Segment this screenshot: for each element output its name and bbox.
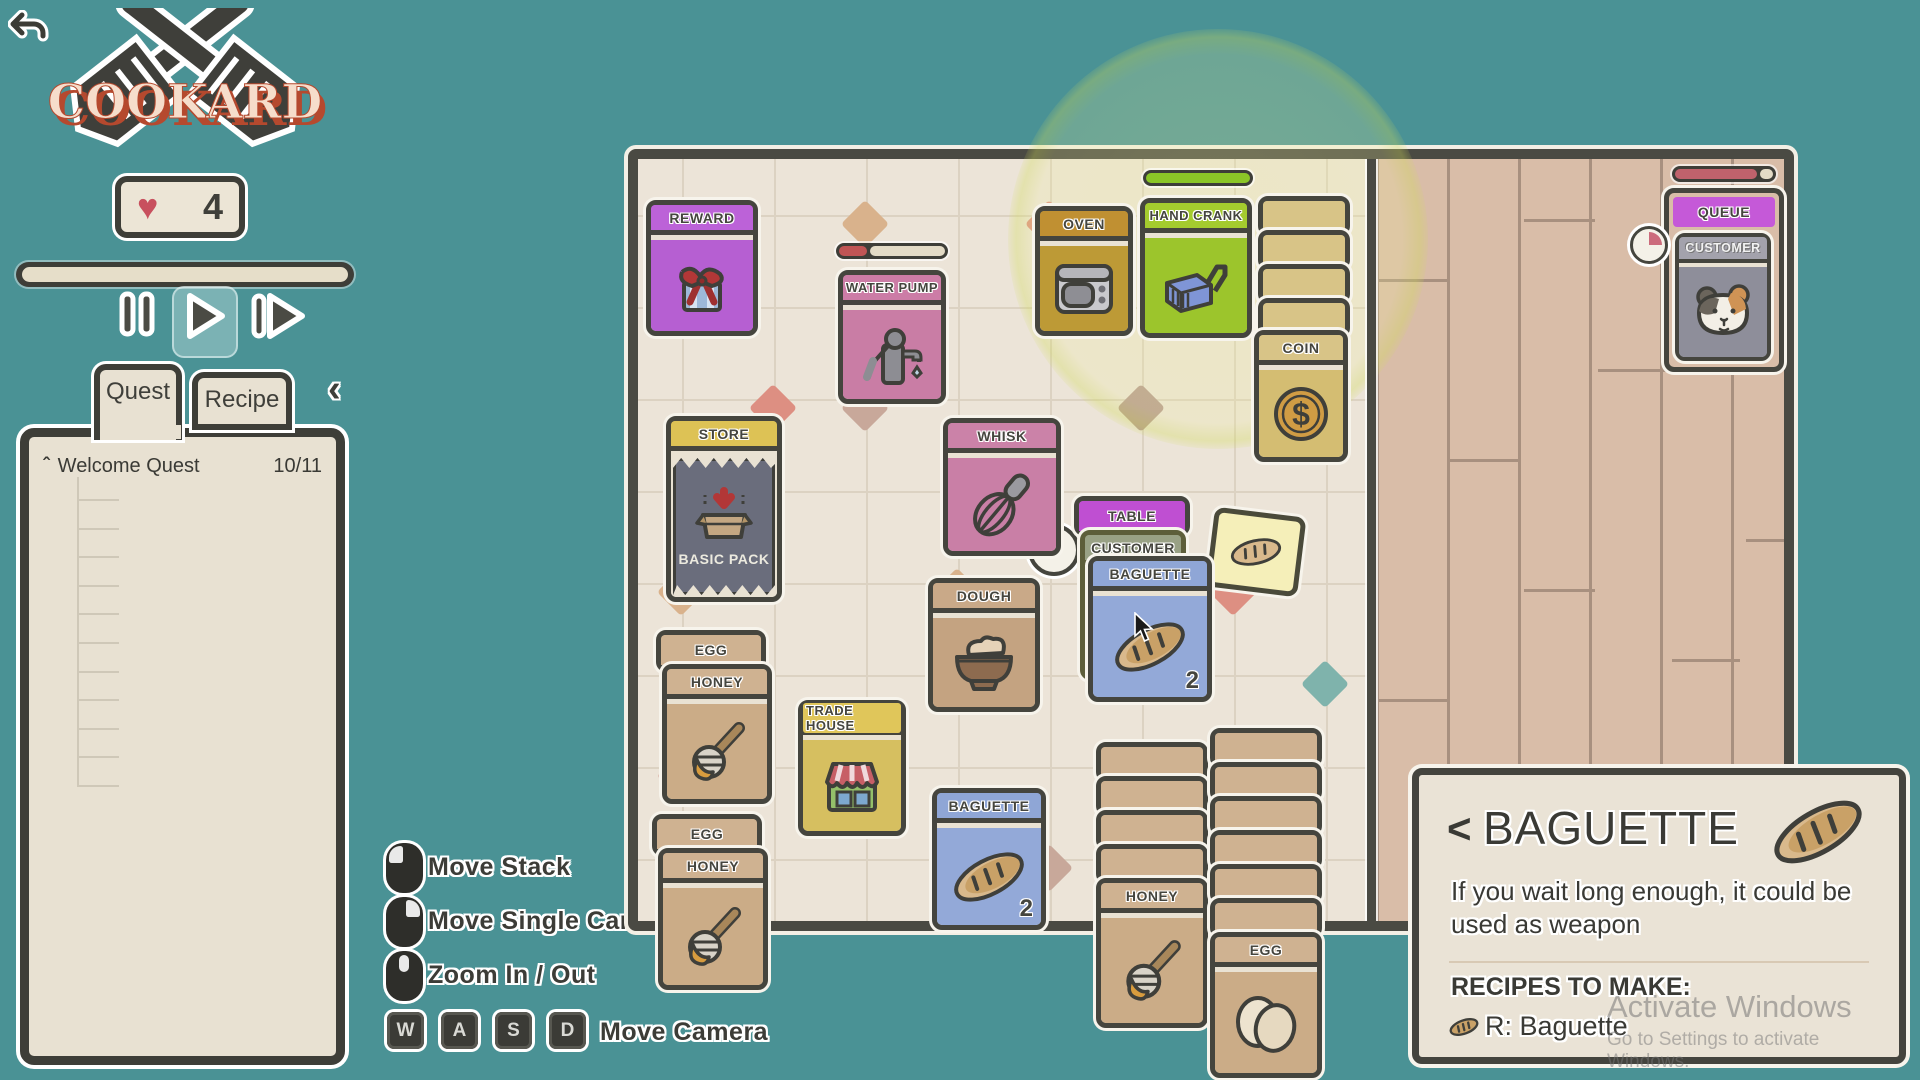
wood-seam [1376,279,1447,282]
baguette-table-count: 2 [1186,667,1199,695]
game-stage: COOKARD COOKARD ♥ 4 Quest Recipe ‹ [0,0,1920,1080]
tile-diamond [1301,660,1349,708]
tile-diamond [1117,384,1165,432]
card-honey-lower[interactable]: HONEY [658,848,768,990]
microwave-icon [1053,260,1115,318]
quest-tree-stub [77,528,119,530]
info-description: If you wait long enough, it could be use… [1451,875,1871,940]
card-trade-house[interactable]: TRADE HOUSE [798,700,906,836]
tab-quest-label: Quest [106,378,170,406]
quest-tree-stub [77,671,119,673]
quest-tree-stub [77,728,119,730]
eggs-icon [1228,990,1304,1056]
honey-dipper-icon [681,716,753,788]
card-table-label: TABLE [1108,508,1156,524]
baguette-bottom-count: 2 [1020,895,1033,923]
quest-group-title: Welcome Quest [58,455,200,478]
card-honey-upper[interactable]: HONEY [662,664,772,804]
card-honey-stack-label: HONEY [1126,888,1178,904]
wood-seam [1450,459,1521,462]
watermark-line2: Go to Settings to activate Windows. [1607,1029,1899,1073]
quest-tree-stub [77,556,119,558]
move-stack-label: Move Stack [428,853,571,882]
card-customer-queued-label: CUSTOMER [1685,241,1760,255]
card-trade-house-label: TRADE HOUSE [803,703,901,733]
key-w: W [387,1012,424,1049]
info-title: BAGUETTE [1483,801,1739,855]
card-baguette-preview [1205,507,1306,598]
quest-tree-stub [77,756,119,758]
card-queue-label: QUEUE [1698,204,1750,220]
pause-button[interactable] [116,288,158,340]
timer-icon [1630,226,1668,264]
card-reward[interactable]: REWARD [646,200,758,336]
card-baguette-table-label: BAGUETTE [1110,566,1191,582]
quest-tree-stub [77,499,119,501]
dough-bowl-icon [949,631,1019,695]
card-honey-upper-label: HONEY [691,674,743,690]
quest-tree-stub [77,585,119,587]
card-baguette-bottom[interactable]: BAGUETTE 2 [932,788,1046,930]
shop-icon [819,756,885,816]
card-hand-crank[interactable]: HAND CRANK [1140,198,1252,338]
move-single-card-label: Move Single Card [428,907,646,936]
hearts-counter: ♥ 4 [115,176,245,238]
cookard-logo: COOKARD COOKARD [30,8,340,168]
card-coin[interactable]: COIN $ [1254,330,1348,462]
card-water-pump[interactable]: WATER PUMP [838,270,946,404]
wood-seam [1746,539,1784,542]
coin-icon: $ [1271,384,1331,444]
baguette-icon [947,846,1031,908]
card-store-label: STORE [699,426,749,442]
quest-tree-stub [77,613,119,615]
play-button[interactable] [180,288,230,344]
chevron-down-icon: ˆ [43,455,50,478]
tab-recipe-label: Recipe [205,386,280,414]
gift-icon [670,254,734,318]
heart-icon: ♥ [137,189,158,225]
whisk-icon [964,467,1040,543]
watermark-line1: Activate Windows [1607,989,1852,1025]
wood-seam [1376,699,1447,702]
quest-tree-stub [77,699,119,701]
wood-seam [1598,369,1669,372]
card-baguette-bottom-label: BAGUETTE [949,798,1030,814]
card-honey-stack-top[interactable]: HONEY [1096,878,1208,1028]
card-oven-label: OVEN [1063,216,1105,232]
quest-tree-stub [77,785,119,787]
water-pump-icon [859,319,925,391]
card-dough-label: DOUGH [957,588,1012,604]
zoom-in-out-label: Zoom In / Out [428,961,596,990]
open-box-icon [693,487,755,545]
hand-crank-progress [1143,170,1253,186]
card-dough[interactable]: DOUGH [928,578,1040,712]
card-customer-queued[interactable]: CUSTOMER [1675,233,1771,361]
card-water-pump-label: WATER PUMP [846,280,938,295]
honey-dipper-icon [677,901,749,973]
info-back-chevron[interactable]: < [1447,805,1472,853]
customer-patience-bar [1672,166,1776,182]
card-coin-label: COIN [1283,340,1320,356]
guinea-pig-icon [1691,283,1755,341]
quest-tree-stub [77,642,119,644]
card-egg-stack-top[interactable]: EGG [1210,932,1322,1078]
recipe-baguette-icon [1447,1015,1481,1039]
tile-diamond [841,200,889,248]
key-d: D [549,1012,586,1049]
day-progress-bar [16,262,354,287]
key-s: S [495,1012,532,1049]
wood-seam [1524,589,1595,592]
card-whisk[interactable]: WHISK [943,418,1061,556]
baguette-icon [1763,793,1873,871]
quest-panel: ˆ Welcome Quest 10/11 [20,428,345,1065]
card-queue[interactable]: QUEUE CUSTOMER [1664,188,1784,372]
logo-text: COOKARD [48,75,323,130]
mouse-wheel-icon [386,951,423,1001]
collapse-panel-chevron[interactable]: ‹ [328,368,341,411]
hearts-value: 4 [203,186,223,228]
quest-group-row[interactable]: ˆ Welcome Quest 10/11 [43,455,322,478]
card-egg-stack-label: EGG [1250,942,1283,958]
water-pump-progress [836,243,948,259]
basic-pack-label: BASIC PACK [678,551,769,567]
card-info-panel: < BAGUETTE If you wait long enough, it c… [1412,768,1906,1064]
card-oven[interactable]: OVEN [1035,206,1133,336]
mouse-left-icon [386,843,423,893]
card-egg-lower-label: EGG [691,826,724,842]
card-customer-seated-label: CUSTOMER [1091,540,1175,556]
svg-text:$: $ [1292,396,1310,432]
mouse-right-icon [386,897,423,947]
move-camera-label: Move Camera [600,1018,768,1047]
card-reward-label: REWARD [669,210,734,226]
quest-progress: 10/11 [273,455,322,478]
info-divider [1449,961,1869,963]
fast-forward-button[interactable] [248,288,306,344]
honey-dipper-icon [1115,932,1189,1010]
card-honey-lower-label: HONEY [687,858,739,874]
hand-crank-icon [1159,253,1233,319]
wood-seam [1524,219,1595,222]
card-egg-upper-label: EGG [695,642,728,658]
quest-tree-line [77,477,79,785]
room-divider [1367,159,1376,921]
key-a: A [441,1012,478,1049]
baguette-icon [1221,526,1292,578]
mouse-cursor [1132,612,1156,644]
tab-recipe[interactable]: Recipe [192,372,292,430]
wood-seam [1672,659,1740,662]
card-whisk-label: WHISK [977,428,1026,444]
card-store-basic-pack[interactable]: STORE BASIC PACK [666,416,782,602]
card-hand-crank-label: HAND CRANK [1149,208,1242,223]
